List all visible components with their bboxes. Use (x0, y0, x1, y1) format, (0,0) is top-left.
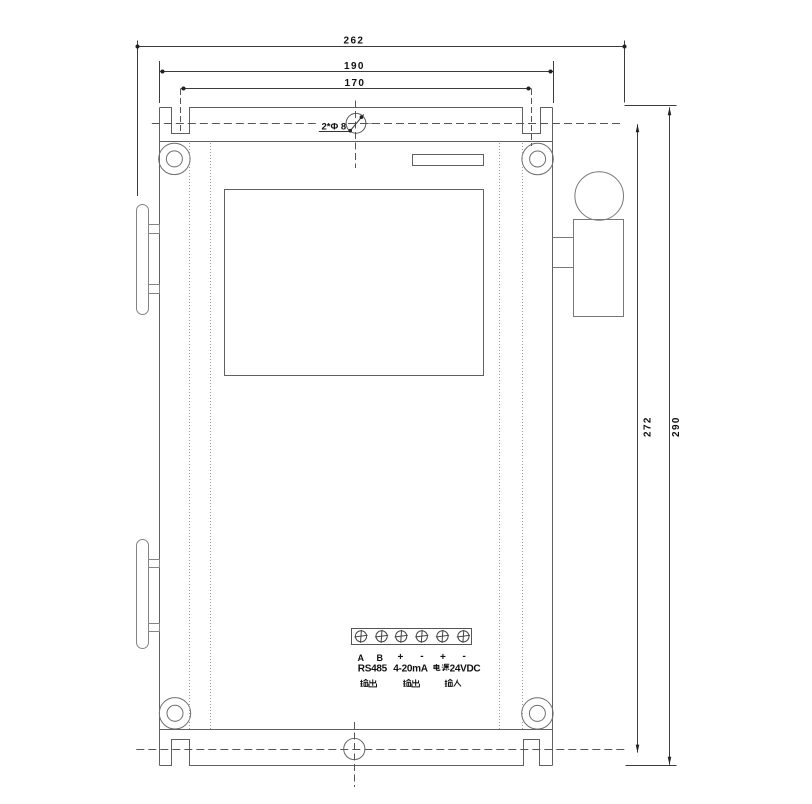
svg-text:24VDC: 24VDC (450, 664, 481, 675)
svg-text:-: - (420, 651, 423, 662)
svg-text:190: 190 (344, 61, 365, 72)
svg-text:4-20mA: 4-20mA (393, 664, 427, 675)
svg-text:B: B (377, 653, 384, 663)
svg-text:2*Φ 8: 2*Φ 8 (322, 121, 347, 132)
svg-text:262: 262 (344, 36, 365, 47)
svg-text:+: + (440, 652, 446, 663)
svg-text:+: + (398, 652, 404, 663)
svg-text:-: - (463, 651, 466, 662)
svg-text:170: 170 (345, 78, 366, 89)
svg-text:A: A (358, 653, 365, 663)
svg-text:290: 290 (671, 416, 682, 437)
svg-text:RS485: RS485 (358, 664, 388, 675)
svg-text:272: 272 (643, 416, 654, 437)
